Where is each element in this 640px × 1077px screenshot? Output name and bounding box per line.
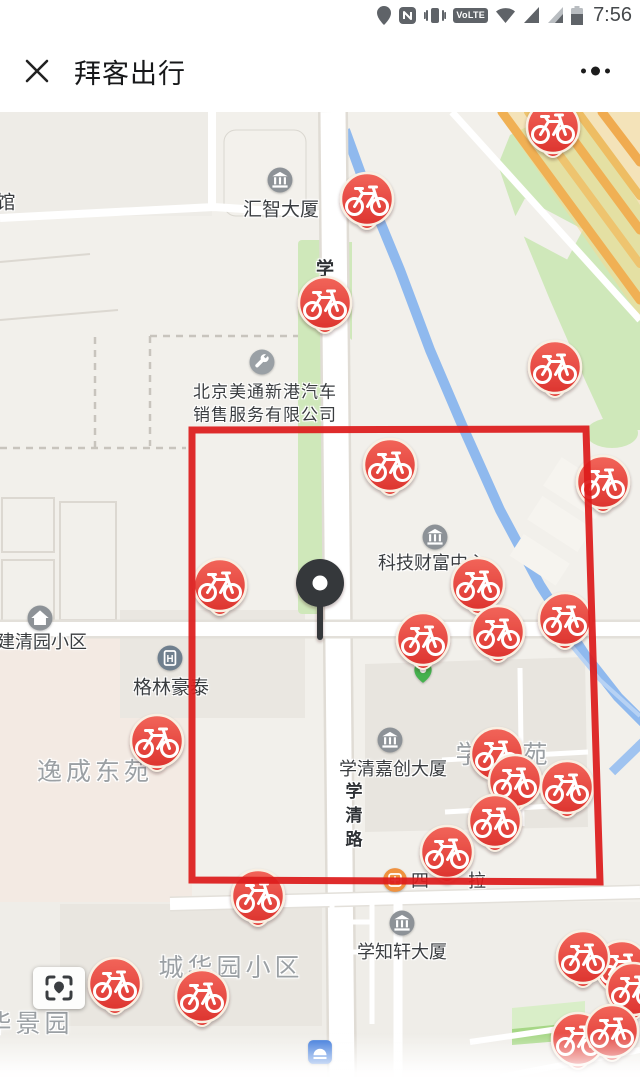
location-icon	[377, 6, 391, 25]
wifi-icon	[495, 6, 516, 24]
app-screen: VoLTE 7:56 拜客出行	[0, 0, 640, 1077]
more-menu-button[interactable]	[575, 61, 616, 82]
vibrate-icon	[424, 6, 446, 25]
volte-badge: VoLTE	[453, 8, 488, 23]
page-title: 拜客出行	[74, 52, 186, 91]
nfc-icon	[398, 6, 417, 25]
locate-button[interactable]	[33, 967, 85, 1009]
signal-icon	[547, 6, 564, 24]
signal-icon	[523, 6, 540, 24]
more-dot	[581, 69, 586, 74]
close-icon[interactable]	[22, 56, 52, 86]
more-dot	[591, 67, 600, 76]
status-time: 7:56	[593, 4, 632, 27]
red-rectangle-annotation	[192, 429, 600, 882]
annotation-layer	[0, 112, 640, 1077]
locate-icon	[45, 975, 73, 1001]
webview-header: 拜客出行	[0, 30, 640, 112]
more-dot	[605, 69, 610, 74]
map-canvas[interactable]: H	[0, 112, 640, 1077]
battery-icon	[571, 6, 583, 25]
status-bar: VoLTE 7:56	[0, 0, 640, 30]
